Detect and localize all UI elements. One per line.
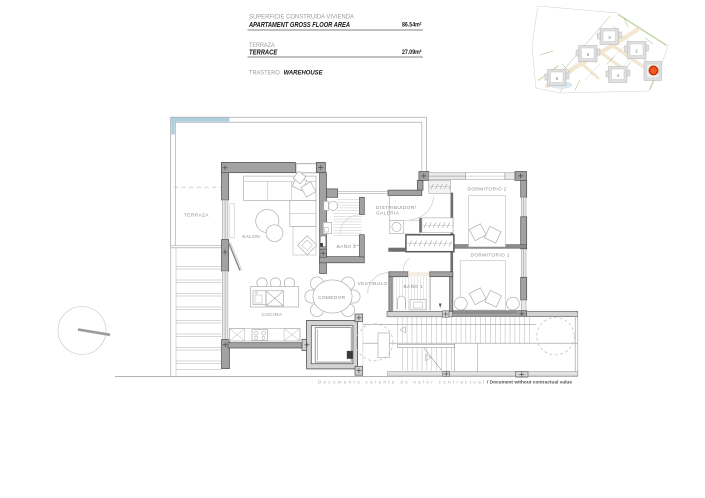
svg-text:TERRAZA: TERRAZA [249,42,275,49]
svg-text:COCINA: COCINA [262,312,283,318]
svg-text:DORMITORIO 1: DORMITORIO 1 [471,253,510,259]
svg-text:/ Document without contractual: / Document without contractual value [487,379,573,384]
svg-text:27.09m²: 27.09m² [402,49,422,56]
svg-text:86.54m²: 86.54m² [402,22,422,29]
svg-text:TRASTERO: TRASTERO [249,70,280,77]
svg-text:TERRACE: TERRACE [249,49,278,56]
svg-text:BAÑO 1: BAÑO 1 [404,283,424,290]
svg-text:SALON: SALON [242,234,260,240]
svg-text:DISTRIBUIDOR/: DISTRIBUIDOR/ [376,205,417,211]
svg-text:APARTAMENT GROSS FLOOR AREA: APARTAMENT GROSS FLOOR AREA [248,22,350,29]
svg-text:SUPERFICIE CONSTRUIDA VIVIENDA: SUPERFICIE CONSTRUIDA VIVIENDA [249,13,355,20]
svg-text:WAREHOUSE: WAREHOUSE [284,70,324,77]
svg-text:BAÑO 2: BAÑO 2 [337,243,357,250]
svg-text:GALERIA: GALERIA [376,211,400,217]
svg-text:VESTIBULO: VESTIBULO [358,281,388,287]
svg-text:TERRAZA: TERRAZA [184,213,209,219]
svg-text:COMEDOR: COMEDOR [318,295,346,301]
svg-text:DORMITORIO 2: DORMITORIO 2 [468,186,507,192]
